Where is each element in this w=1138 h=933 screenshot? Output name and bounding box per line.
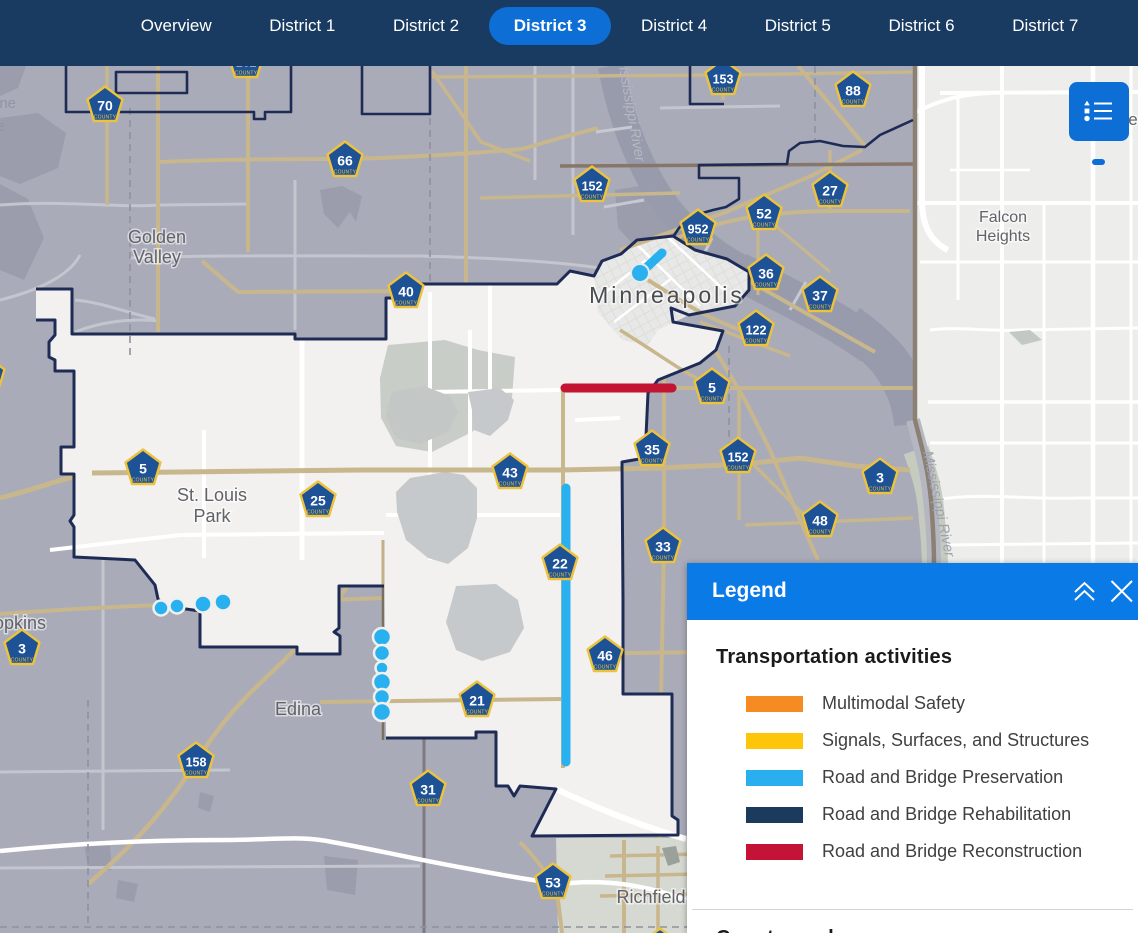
svg-text:COUNTY: COUNTY [499, 482, 522, 488]
svg-text:COUNTY: COUNTY [753, 223, 776, 229]
svg-text:Edina: Edina [275, 699, 322, 719]
svg-text:COUNTY: COUNTY [185, 771, 208, 777]
svg-text:70: 70 [97, 98, 113, 114]
svg-text:COUNTY: COUNTY [712, 88, 735, 94]
svg-text:952: 952 [688, 223, 709, 237]
svg-text:e: e [0, 118, 4, 135]
svg-text:153: 153 [713, 73, 734, 87]
svg-text:COUNTY: COUNTY [701, 397, 724, 403]
svg-text:COUNTY: COUNTY [94, 115, 117, 121]
svg-text:Richfield: Richfield [616, 887, 685, 907]
svg-text:158: 158 [186, 756, 207, 770]
svg-text:COUNTY: COUNTY [809, 530, 832, 536]
svg-text:Golden: Golden [128, 227, 186, 247]
svg-text:COUNTY: COUNTY [727, 466, 750, 472]
svg-text:COUNTY: COUNTY [11, 658, 34, 664]
svg-text:ine: ine [0, 95, 16, 112]
svg-text:Park: Park [193, 506, 231, 526]
svg-text:40: 40 [398, 284, 414, 300]
svg-text:3: 3 [876, 470, 884, 486]
svg-text:Minneapolis: Minneapolis [589, 282, 745, 308]
svg-text:COUNTY: COUNTY [466, 710, 489, 716]
svg-text:5: 5 [139, 461, 147, 477]
svg-text:33: 33 [655, 539, 671, 555]
svg-text:COUNTY: COUNTY [417, 799, 440, 805]
svg-text:3: 3 [18, 641, 26, 657]
svg-text:St. Louis: St. Louis [177, 485, 247, 505]
svg-text:COUNTY: COUNTY [307, 510, 330, 516]
svg-text:COUNTY: COUNTY [842, 100, 865, 106]
svg-text:COUNTY: COUNTY [641, 459, 664, 465]
svg-text:25: 25 [310, 493, 326, 509]
svg-text:COUNTY: COUNTY [652, 556, 675, 562]
svg-text:52: 52 [756, 206, 772, 222]
svg-text:48: 48 [812, 513, 828, 529]
svg-text:36: 36 [758, 266, 774, 282]
svg-text:37: 37 [812, 288, 828, 304]
svg-text:35: 35 [644, 442, 660, 458]
svg-text:43: 43 [502, 465, 518, 481]
svg-text:22: 22 [552, 556, 568, 572]
svg-text:COUNTY: COUNTY [581, 195, 604, 201]
svg-text:COUNTY: COUNTY [334, 170, 357, 176]
svg-text:46: 46 [597, 648, 613, 664]
svg-text:COUNTY: COUNTY [755, 283, 778, 289]
svg-text:COUNTY: COUNTY [869, 487, 892, 493]
svg-text:COUNTY: COUNTY [542, 892, 565, 898]
svg-text:152: 152 [582, 180, 603, 194]
svg-text:122: 122 [746, 324, 767, 338]
svg-text:COUNTY: COUNTY [549, 573, 572, 579]
svg-text:COUNTY: COUNTY [819, 200, 842, 206]
svg-text:5: 5 [708, 380, 716, 396]
svg-text:COUNTY: COUNTY [594, 665, 617, 671]
svg-text:Valley: Valley [133, 247, 181, 267]
svg-text:21: 21 [469, 693, 485, 709]
svg-text:27: 27 [822, 183, 838, 199]
svg-text:COUNTY: COUNTY [132, 478, 155, 484]
svg-text:31: 31 [420, 782, 436, 798]
svg-text:COUNTY: COUNTY [235, 71, 258, 77]
svg-text:88: 88 [845, 83, 861, 99]
svg-text:53: 53 [545, 875, 561, 891]
svg-text:COUNTY: COUNTY [745, 339, 768, 345]
svg-text:152: 152 [728, 451, 749, 465]
svg-text:COUNTY: COUNTY [809, 305, 832, 311]
svg-text:162: 162 [236, 66, 257, 70]
svg-text:COUNTY: COUNTY [395, 301, 418, 307]
svg-text:COUNTY: COUNTY [687, 238, 710, 244]
svg-text:Heights: Heights [976, 228, 1030, 245]
svg-text:Falcon: Falcon [979, 209, 1027, 226]
svg-text:66: 66 [337, 153, 353, 169]
svg-text:e: e [1128, 110, 1137, 129]
